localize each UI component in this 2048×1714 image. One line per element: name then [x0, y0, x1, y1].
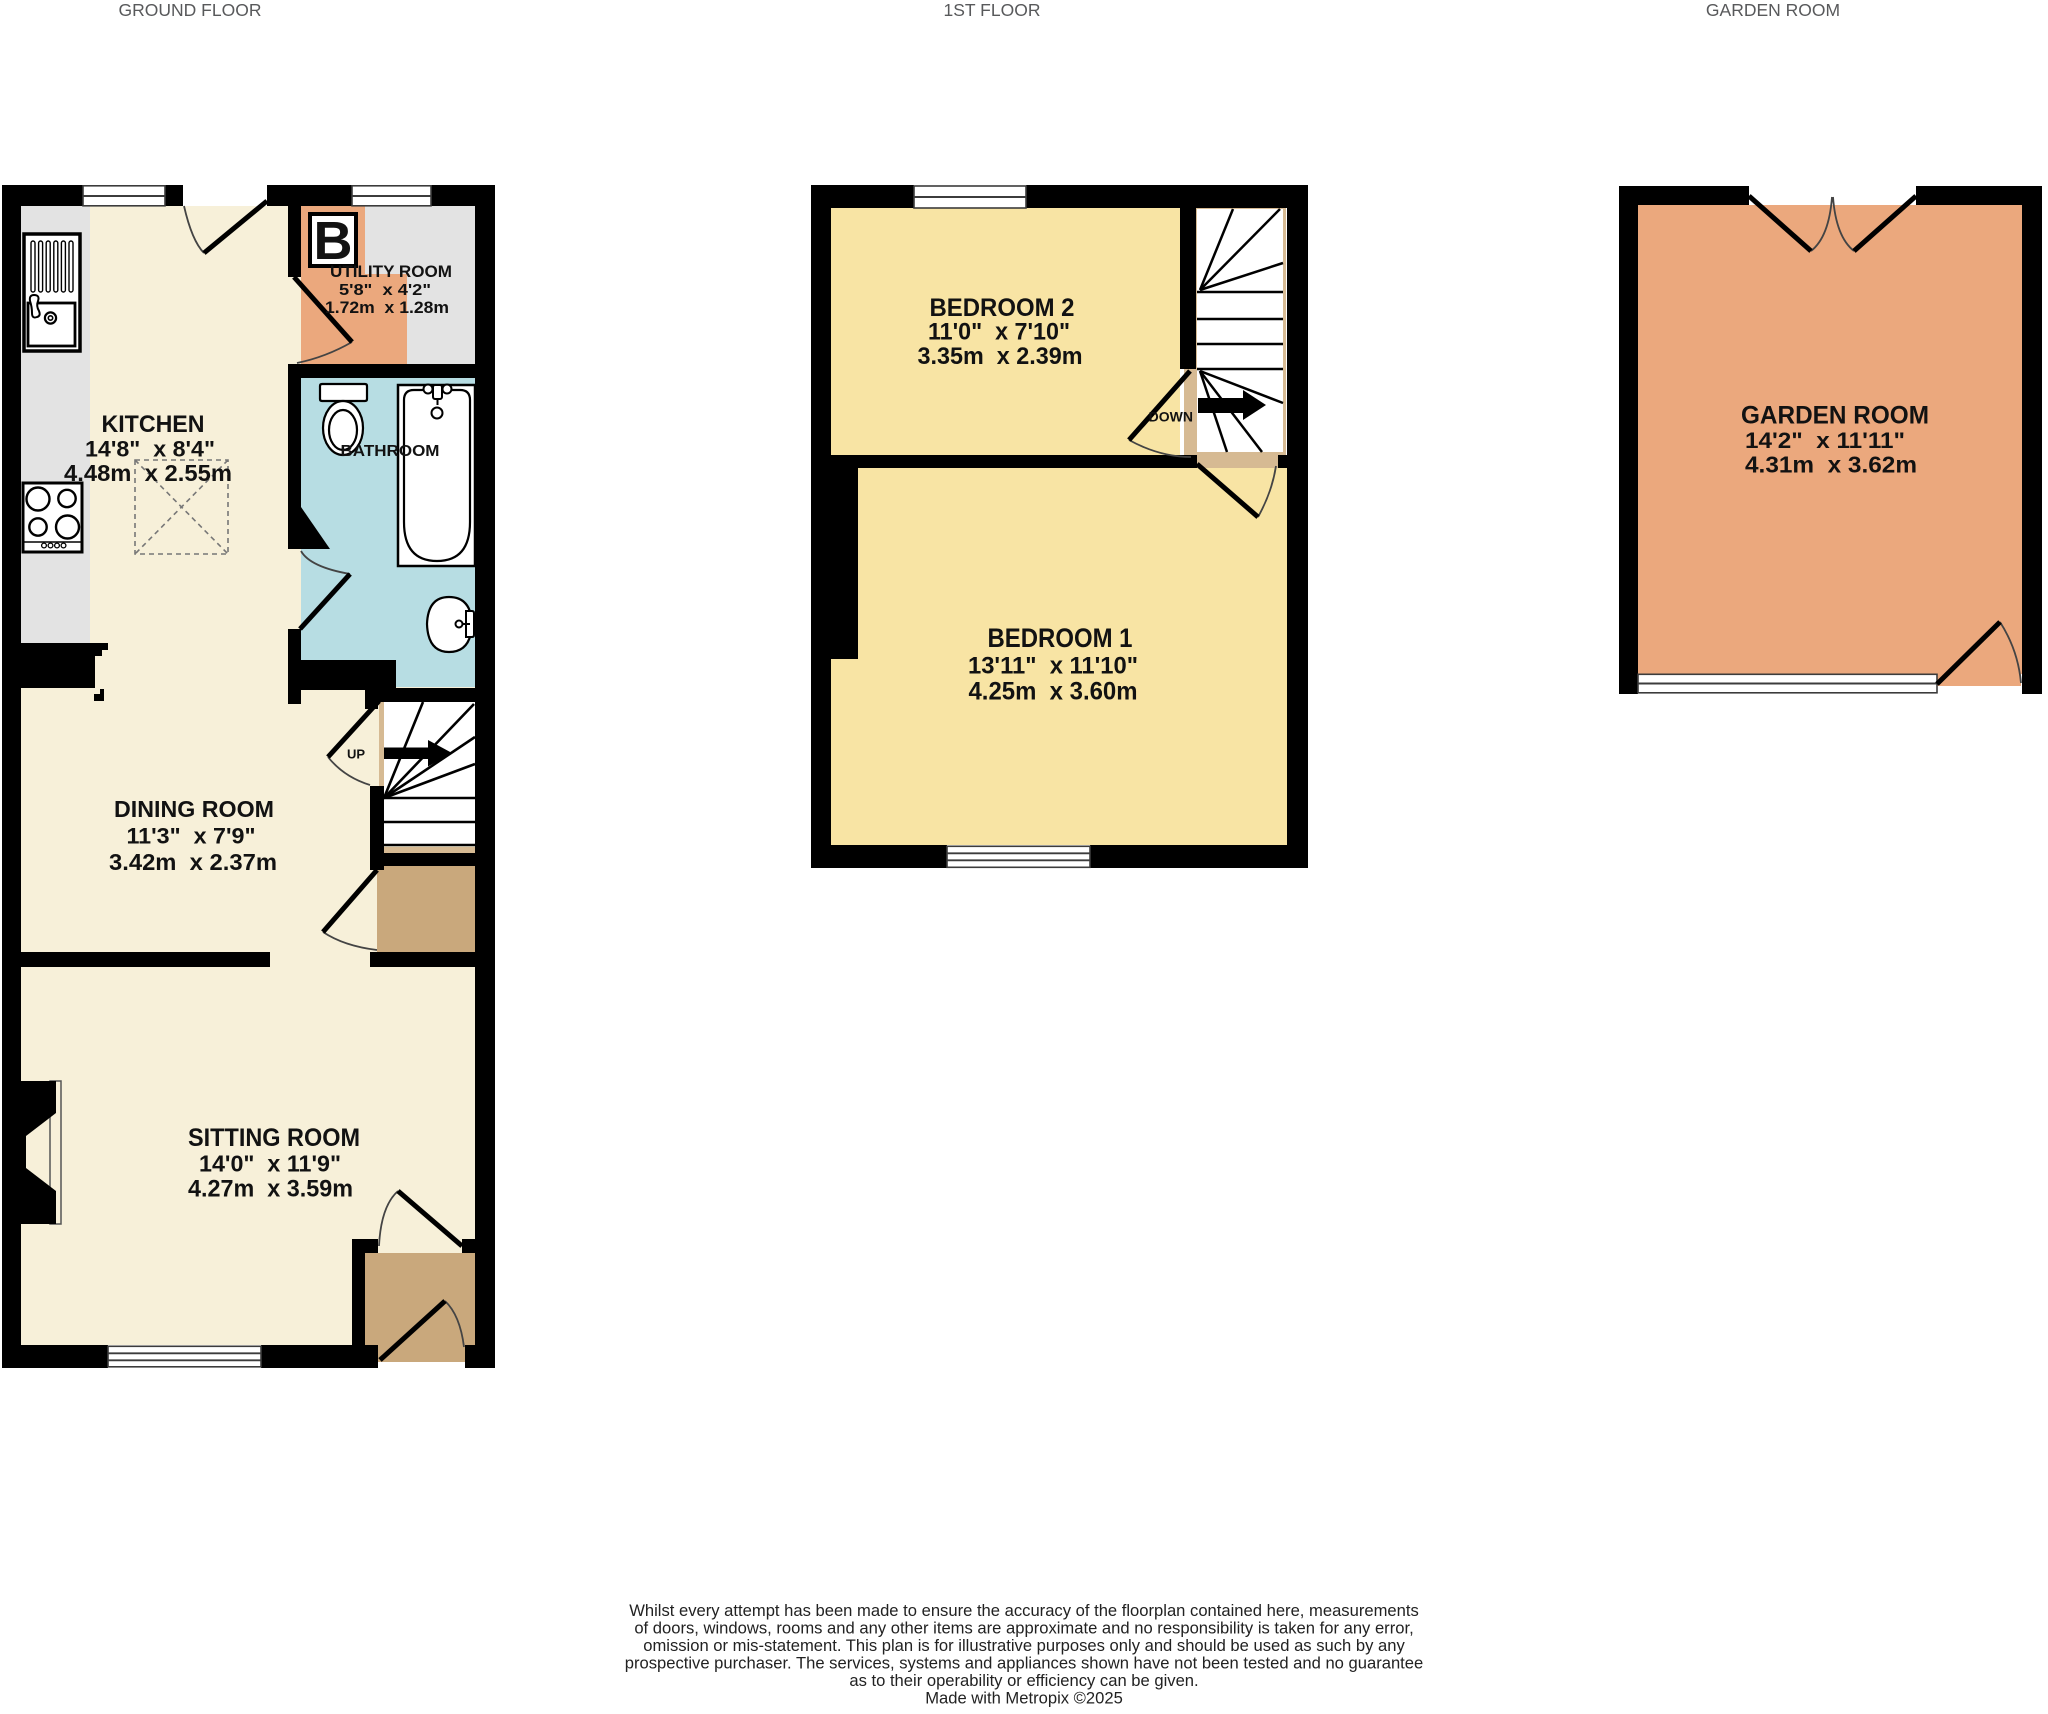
svg-text:4.27m x 3.59m: 4.27m x 3.59m	[188, 1176, 353, 1203]
svg-text:DOWN: DOWN	[1149, 409, 1193, 425]
svg-text:UTILITY ROOM: UTILITY ROOM	[330, 262, 452, 281]
svg-text:14'2" x 11'11": 14'2" x 11'11"	[1745, 428, 1905, 453]
svg-text:11'3" x 7'9": 11'3" x 7'9"	[127, 824, 256, 849]
svg-text:13'11" x 11'10": 13'11" x 11'10"	[968, 653, 1138, 680]
svg-text:3.42m x 2.37m: 3.42m x 2.37m	[109, 849, 277, 875]
svg-text:as to their operability or eff: as to their operability or efficiency ca…	[849, 1671, 1198, 1690]
svg-text:BATHROOM: BATHROOM	[341, 443, 440, 460]
svg-text:DINING ROOM: DINING ROOM	[114, 796, 274, 822]
svg-text:11'0" x 7'10": 11'0" x 7'10"	[928, 319, 1070, 346]
svg-text:14'8" x 8'4": 14'8" x 8'4"	[85, 437, 215, 462]
svg-text:4.31m x 3.62m: 4.31m x 3.62m	[1745, 452, 1917, 478]
svg-text:SITTING ROOM: SITTING ROOM	[188, 1124, 360, 1152]
svg-text:KITCHEN: KITCHEN	[102, 411, 205, 438]
svg-text:1ST FLOOR: 1ST FLOOR	[944, 0, 1041, 20]
svg-text:3.35m x 2.39m: 3.35m x 2.39m	[918, 343, 1083, 370]
svg-text:Made with Metropix ©2025: Made with Metropix ©2025	[925, 1689, 1123, 1708]
svg-text:5'8" x 4'2": 5'8" x 4'2"	[339, 282, 431, 299]
svg-text:prospective purchaser. The ser: prospective purchaser. The services, sys…	[625, 1654, 1424, 1673]
svg-text:GARDEN ROOM: GARDEN ROOM	[1706, 0, 1840, 20]
svg-text:4.25m x 3.60m: 4.25m x 3.60m	[969, 678, 1138, 706]
svg-text:UP: UP	[347, 747, 365, 762]
svg-text:1.72m x 1.28m: 1.72m x 1.28m	[325, 299, 449, 317]
svg-text:GROUND FLOOR: GROUND FLOOR	[119, 0, 262, 20]
svg-text:omission or mis-statement. Thi: omission or mis-statement. This plan is …	[643, 1636, 1405, 1655]
svg-text:BEDROOM 1: BEDROOM 1	[988, 623, 1133, 653]
svg-text:Whilst every attempt has been: Whilst every attempt has been made to en…	[629, 1601, 1419, 1620]
svg-text:14'0" x 11'9": 14'0" x 11'9"	[199, 1151, 341, 1177]
svg-text:of doors, windows, rooms and a: of doors, windows, rooms and any other i…	[634, 1619, 1413, 1638]
svg-text:GARDEN ROOM: GARDEN ROOM	[1741, 402, 1929, 430]
svg-text:4.48m x 2.55m: 4.48m x 2.55m	[64, 460, 232, 486]
